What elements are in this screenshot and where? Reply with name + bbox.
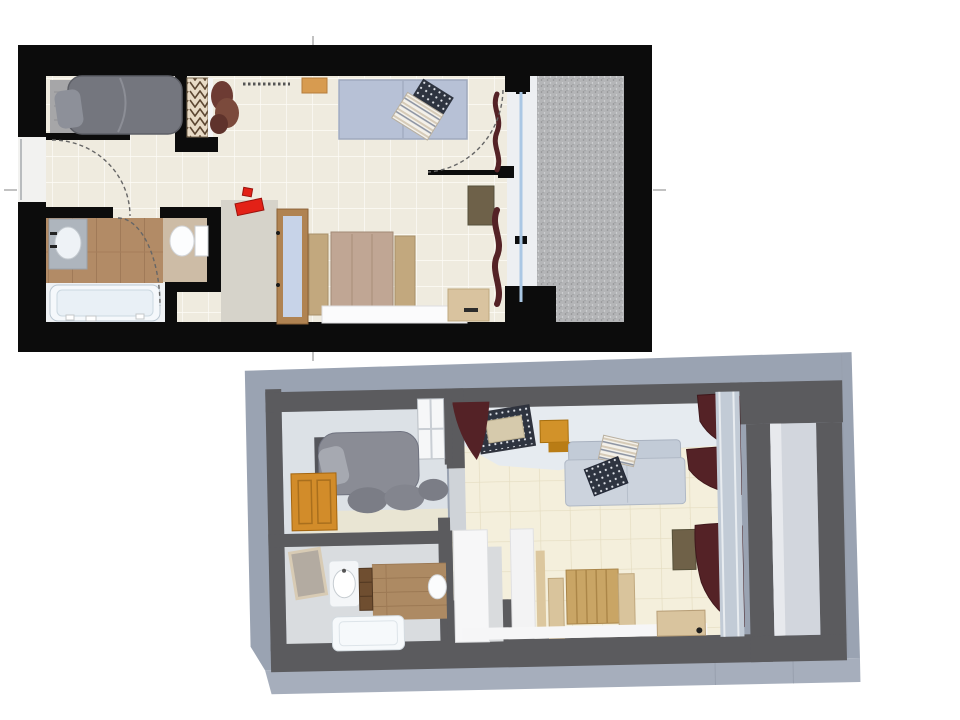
bath-wall-inner-v: [165, 282, 177, 322]
wall-top: [18, 45, 652, 76]
left-wall-window-gap: [18, 137, 46, 202]
bath-cabinet: [359, 568, 373, 610]
bed-side-panel-left: [309, 234, 328, 315]
view-3d: [245, 352, 861, 695]
white-column: [510, 529, 535, 634]
toilet-3d: [428, 575, 446, 599]
olive-cabinet: [672, 529, 696, 569]
wall-left-lower: [18, 202, 46, 352]
tap-2: [50, 245, 57, 248]
wall-shelf: [302, 78, 327, 93]
balcony3d-right: [816, 422, 846, 636]
desk-handle: [464, 308, 478, 312]
side-table: [468, 186, 494, 225]
toilet-bowl: [170, 226, 194, 256]
toilet-tank: [195, 226, 208, 256]
door-hinge-1: [276, 231, 280, 235]
tan-strip: [536, 551, 547, 634]
balcony-floor: [537, 76, 624, 322]
wooden-bed-3d: [566, 569, 619, 624]
bed-pillow: [53, 88, 84, 129]
entry-hall-floor: [221, 200, 278, 322]
double-bed: [331, 232, 393, 308]
red-sign-square: [242, 187, 252, 196]
bed-side-panel-right: [395, 236, 415, 309]
separator-face: [449, 468, 466, 530]
balcony3d-bottom: [750, 634, 847, 662]
bed-side-3d: [618, 574, 635, 629]
wall-left-upper: [18, 45, 46, 137]
washbasin: [55, 227, 81, 259]
orange-cabinet: [540, 420, 568, 443]
floorplan-canvas: [0, 0, 960, 720]
white-ledge: [322, 306, 467, 323]
open-wardrobe: [187, 78, 208, 137]
tap-1: [50, 232, 57, 235]
balcony3d-top: [730, 380, 843, 424]
wall-right: [624, 45, 652, 352]
bath-wall-top-left: [46, 207, 113, 218]
desk: [448, 289, 489, 321]
balcony-door-leaf: [428, 170, 505, 175]
wardrobe-side-face: [488, 546, 504, 641]
bath-wall-right: [207, 207, 221, 282]
bathtub-inner: [57, 290, 153, 316]
floor-plan-2d: [4, 36, 666, 361]
door-hinge-2: [276, 283, 280, 287]
washbasin-bowl-3d: [333, 570, 356, 598]
bath-mirror: [290, 548, 327, 598]
floorplan-svg: [0, 0, 960, 720]
balcony3d-left: [746, 424, 774, 638]
wardrobe-block: [175, 137, 218, 152]
glazed-door-glass: [283, 216, 302, 317]
wall-bottom: [18, 322, 652, 352]
white-wardrobe: [453, 530, 489, 643]
